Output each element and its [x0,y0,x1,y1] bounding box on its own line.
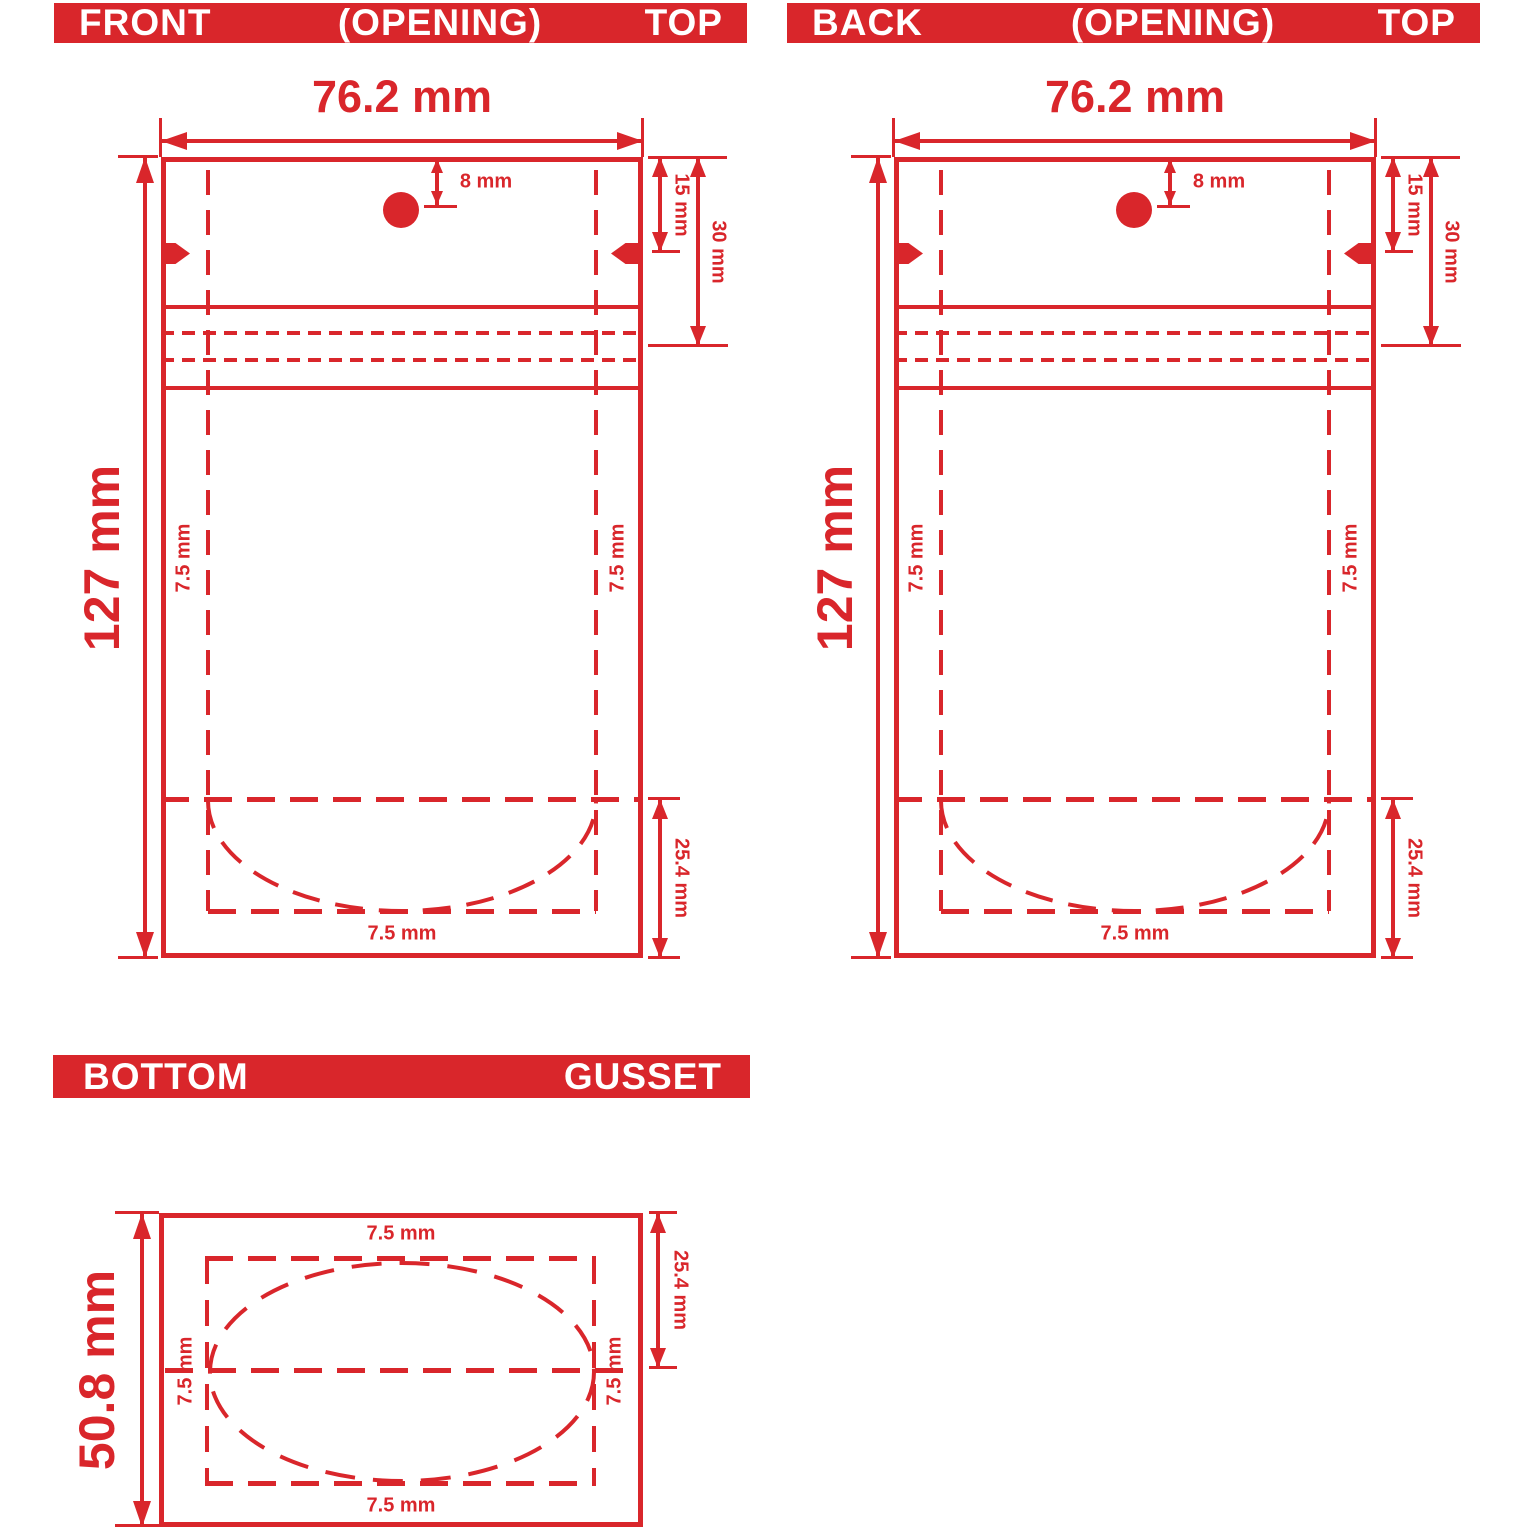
hole-offset-label: 8 mm [460,171,512,194]
extension-line [1381,344,1461,347]
gusset-half-depth-label: 25.4 mm [669,1250,692,1330]
zipper-line [894,358,1376,362]
extension-line [1385,250,1413,253]
gusset-fold-curve [206,799,598,915]
zipper-line [894,331,1376,335]
notch-depth-label: 15 mm [670,173,693,236]
height-dimension-arrow [143,157,147,958]
front-header-center-label: (OPENING) [338,2,542,44]
bottom-seal-line [208,909,596,914]
height-dimension-label: 127 mm [806,465,864,651]
left-seal-label: 7.5 mm [906,524,929,593]
bottom-gusset-panel: BOTTOM GUSSET 50.8 mm 25.4 mm 7.5 mm 7.5… [53,1050,813,1536]
gusset-depth-label: 25.4 mm [1403,838,1426,918]
front-header-left-label: FRONT [79,2,211,44]
gusset-depth-dimension-arrow [1391,799,1395,958]
front-header-right-label: TOP [645,2,723,44]
gusset-left-seal-label: 7.5 mm [175,1337,198,1406]
dieline-canvas: FRONT (OPENING) TOP 76.2 mm 8 mm 15 mm 3… [0,0,1536,1536]
left-seal-label: 7.5 mm [173,524,196,593]
gusset-height-dimension-arrow [140,1213,144,1527]
back-panel: BACK (OPENING) TOP 76.2 mm 8 mm 15 mm 30… [787,0,1536,1050]
gusset-bottom-seal-label: 7.5 mm [367,1495,436,1518]
hang-hole-icon [1116,192,1152,228]
gusset-header-bar: BOTTOM GUSSET [53,1055,750,1098]
extension-line [1157,205,1190,208]
seal-line [161,386,643,390]
extension-line [648,344,728,347]
gusset-header-left-label: BOTTOM [83,1056,249,1098]
height-dimension-label: 127 mm [73,465,131,651]
back-header-left-label: BACK [812,2,923,44]
width-dimension-arrow [894,139,1376,143]
seal-line [894,386,1376,390]
zipper-depth-label: 30 mm [1440,220,1463,283]
back-header-bar: BACK (OPENING) TOP [787,3,1480,43]
zipper-depth-dimension-arrow [1429,157,1433,346]
width-dimension-label: 76.2 mm [312,71,492,123]
width-dimension-label: 76.2 mm [1045,71,1225,123]
right-seal-label: 7.5 mm [607,524,630,593]
gusset-header-right-label: GUSSET [564,1056,722,1098]
hole-offset-dimension-arrow [1168,159,1172,205]
gusset-right-seal-label: 7.5 mm [604,1337,627,1406]
hang-hole-icon [383,192,419,228]
zipper-depth-label: 30 mm [707,220,730,283]
bottom-seal-line [941,909,1329,914]
back-header-center-label: (OPENING) [1071,2,1275,44]
gusset-center-fold-line [165,1368,637,1373]
notch-depth-dimension-arrow [1391,157,1395,252]
gusset-fold-curve [939,799,1331,915]
zipper-line [161,358,643,362]
extension-line [424,205,457,208]
zipper-line [161,331,643,335]
hole-offset-label: 8 mm [1193,171,1245,194]
hole-offset-dimension-arrow [435,159,439,205]
notch-depth-dimension-arrow [658,157,662,252]
width-dimension-arrow [161,139,643,143]
bottom-seal-label: 7.5 mm [368,923,437,946]
notch-depth-label: 15 mm [1403,173,1426,236]
front-panel: FRONT (OPENING) TOP 76.2 mm 8 mm 15 mm 3… [54,0,804,1050]
gusset-top-seal-label: 7.5 mm [367,1223,436,1246]
gusset-depth-dimension-arrow [658,799,662,958]
height-dimension-arrow [876,157,880,958]
right-seal-label: 7.5 mm [1340,524,1363,593]
back-header-right-label: TOP [1378,2,1456,44]
extension-line [652,250,680,253]
zipper-depth-dimension-arrow [696,157,700,346]
gusset-half-depth-dimension-arrow [656,1213,660,1368]
bottom-seal-label: 7.5 mm [1101,923,1170,946]
gusset-height-label: 50.8 mm [68,1270,126,1470]
front-header-bar: FRONT (OPENING) TOP [54,3,747,43]
seal-line [161,305,643,309]
gusset-depth-label: 25.4 mm [670,838,693,918]
seal-line [894,305,1376,309]
